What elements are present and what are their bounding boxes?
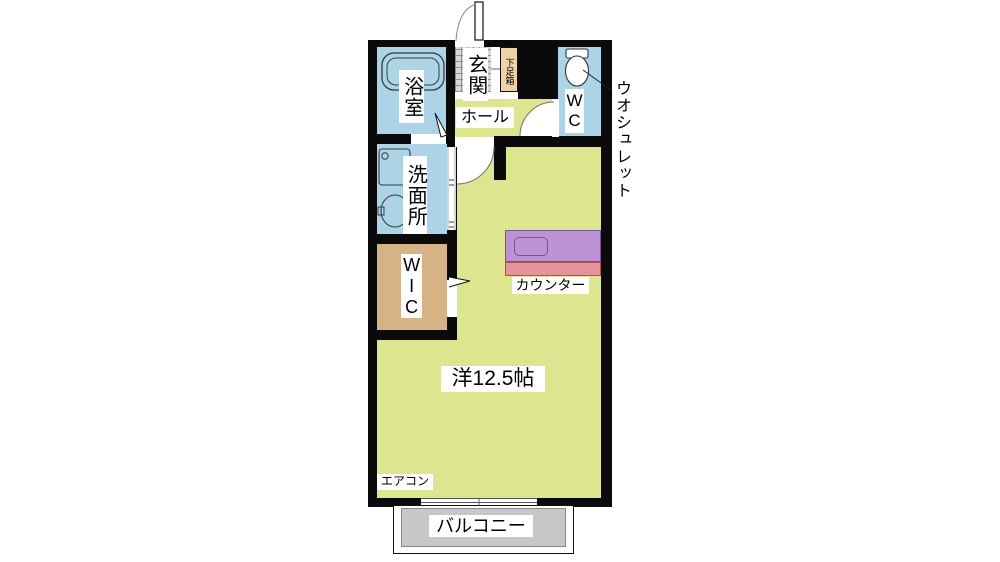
toilet-icon [566,49,589,86]
wic-label: WIC [401,254,422,318]
wc-door-swing [520,102,554,136]
sliding-window-icon [421,499,537,506]
folding-door-icon [448,147,455,230]
washlet-leader-line [583,70,611,90]
closet-door-icon [449,277,470,287]
entrance-label: 玄関 [463,48,488,101]
balcony-label: バルコニー [429,515,533,537]
entry-door-panel [475,2,483,40]
washlet-annotation: ウオシュレット [610,74,632,204]
aircon-label: エアコン [377,474,433,490]
bathroom-door-icon [435,113,447,137]
shoe-box-label: 下足箱 [504,53,515,89]
fixtures-overlay [0,0,1000,562]
washroom-label: 洗面所 [403,156,427,234]
main-room-label: 洋12.5帖 [441,366,545,392]
bathroom-label: 浴室 [399,70,424,123]
entry-door-arc [456,4,476,41]
room-door-swing [457,147,494,184]
floor-plan: 浴室 玄関 下足箱 WC ホール 洗面所 WIC カウンター 洋12.5帖 エア… [0,0,1000,562]
counter-label: カウンター [512,277,589,294]
wc-label: WC [565,89,584,133]
hall-label: ホール [456,107,514,128]
